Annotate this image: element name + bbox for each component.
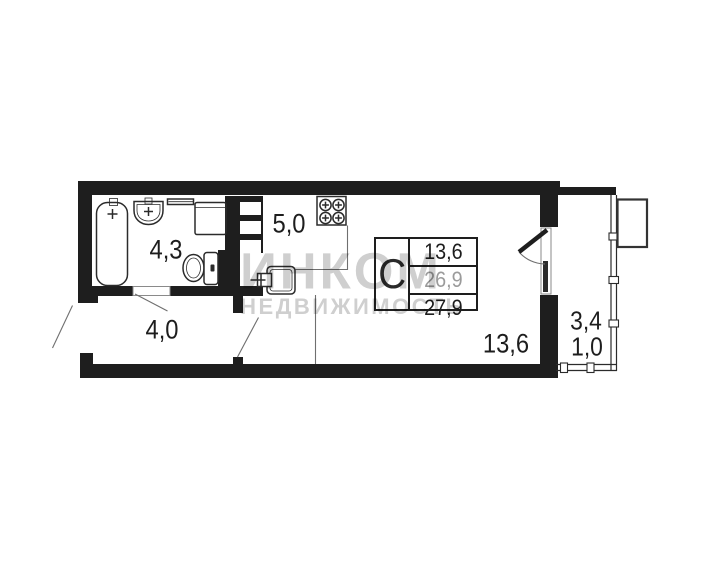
ac-unit-icon xyxy=(618,200,648,248)
total-area-cell: 27,9 xyxy=(410,293,476,321)
bathroom-area-label: 4,3 xyxy=(147,235,185,266)
bathtub-icon xyxy=(97,199,128,286)
washing-machine-icon xyxy=(195,203,226,235)
balcony-reduced-area-label: 1,0 xyxy=(569,332,605,363)
kitchen-area-label: 5,0 xyxy=(270,209,308,240)
hallway-area-label: 4,0 xyxy=(143,315,181,346)
unit-type-cell: С xyxy=(376,239,410,309)
living-area-cell: 13,6 xyxy=(410,239,476,265)
bathroom-sink-icon xyxy=(134,198,163,225)
floorplan-canvas: 4,3 5,0 4,0 13,6 3,4 1,0 С 13,6 26,9 27,… xyxy=(0,0,701,561)
kitchen-sink-icon xyxy=(251,267,296,295)
balcony-door xyxy=(519,228,551,294)
bathroom-door xyxy=(133,287,170,312)
area-values-column: 13,6 26,9 27,9 xyxy=(410,239,476,309)
hallway-opening xyxy=(238,318,259,358)
toilet-icon xyxy=(183,253,218,285)
floor-plan-drawing xyxy=(0,0,701,561)
entry-opening xyxy=(53,306,73,349)
shelf-icon xyxy=(168,199,194,205)
living-room-area-label: 13,6 xyxy=(480,329,533,360)
area-no-balcony-cell: 26,9 xyxy=(410,265,476,293)
room-divider-lines xyxy=(296,226,348,365)
stove-icon xyxy=(317,197,346,226)
apartment-info-table: С 13,6 26,9 27,9 xyxy=(374,237,478,311)
